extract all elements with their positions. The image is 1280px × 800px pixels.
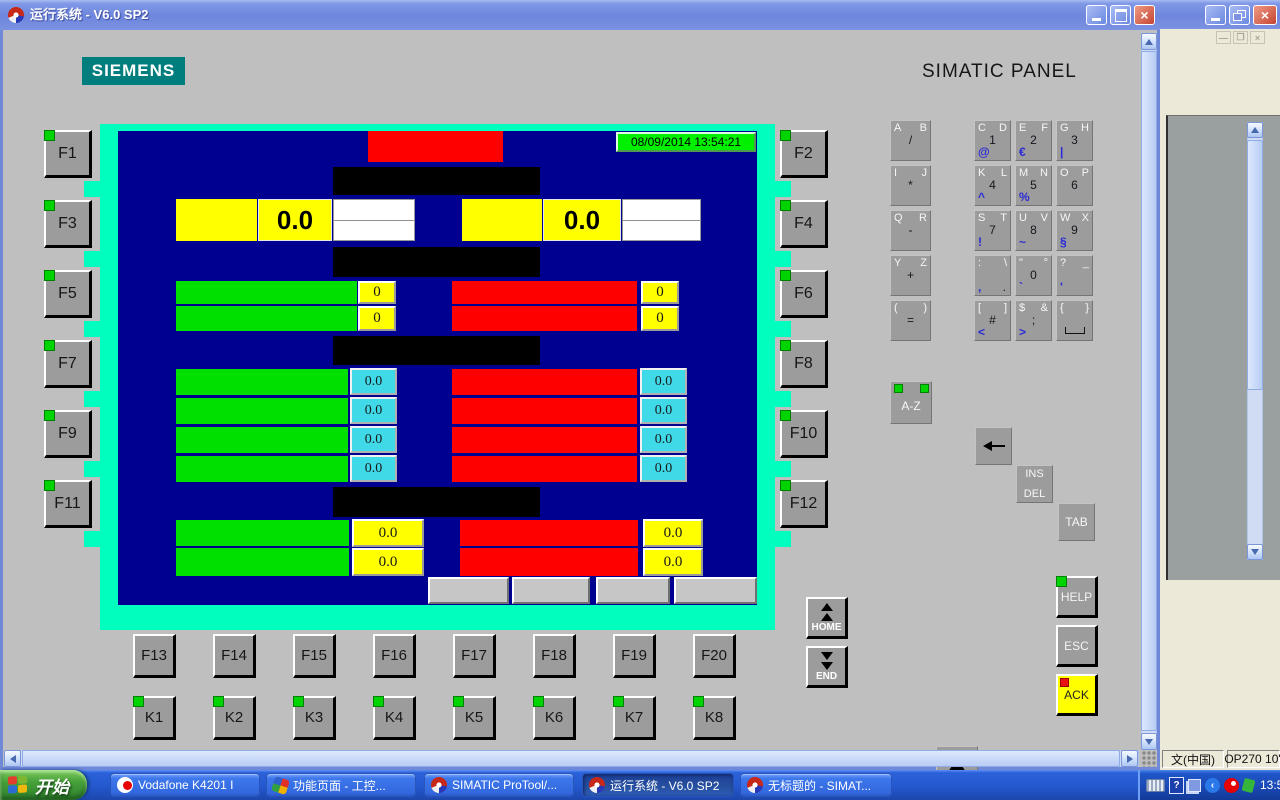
- key-label: HELP: [1061, 590, 1092, 604]
- flow-box: 0.0: [640, 426, 687, 453]
- key-label: END: [816, 671, 837, 682]
- kkey-k5[interactable]: K5: [453, 696, 496, 740]
- green-bar: [176, 281, 357, 304]
- bezel-tab: [84, 531, 100, 547]
- key-label: K8: [705, 709, 723, 726]
- fkey-f4[interactable]: F4: [780, 200, 828, 248]
- key-label: F10: [790, 425, 818, 443]
- fkey-f19[interactable]: F19: [613, 634, 656, 678]
- protool-icon: [431, 777, 447, 793]
- total-box: 0.0: [352, 519, 424, 547]
- led-indicator: [44, 270, 55, 281]
- close-icon: ×: [1261, 8, 1269, 22]
- keypad-key[interactable]: CD1@: [974, 120, 1011, 161]
- scrollbar-thumb[interactable]: [22, 750, 1120, 767]
- red-bar: [452, 456, 637, 482]
- key-label: §: [1060, 235, 1067, 249]
- key-label: }: [1085, 302, 1089, 314]
- runtime-window: 运行系统 - V6.0 SP2 × SIEMENS SIMATIC PANEL …: [0, 0, 1160, 770]
- display-tray-icon[interactable]: [1188, 779, 1201, 792]
- key-label: F17: [461, 647, 487, 664]
- bezel-tab: [84, 181, 100, 197]
- flow-box: 0.0: [350, 397, 397, 424]
- datetime-display: 08/09/2014 13:54:21: [616, 132, 756, 152]
- home-key[interactable]: HOME: [806, 597, 848, 639]
- keypad-key[interactable]: UV8~: [1015, 210, 1052, 251]
- fkey-f1[interactable]: F1: [44, 130, 92, 178]
- red-bar: [452, 306, 637, 331]
- flow-box: 0.0: [640, 368, 687, 395]
- analog-value-right: 0.0: [543, 199, 621, 241]
- bezel-tab: [775, 181, 791, 197]
- vodafone-icon: [117, 777, 133, 793]
- close-icon: ×: [1140, 8, 1148, 22]
- protool-icon: [747, 777, 763, 793]
- key-label: F15: [301, 647, 327, 664]
- setpoint-field-right[interactable]: [622, 199, 701, 241]
- panel-bezel-left: [100, 124, 118, 630]
- keypad-key[interactable]: {}: [1056, 300, 1093, 341]
- az-key[interactable]: A-Z: [890, 381, 932, 424]
- keyboard-tray-icon[interactable]: [1146, 779, 1165, 792]
- system-tray: ? ‹ 13:54: [1138, 770, 1280, 800]
- keypad: CD1@EF2€GH3|KL4^MN5%OP6ST7!UV8~WX9§:\,."…: [974, 120, 1093, 341]
- fkey-f18[interactable]: F18: [533, 634, 576, 678]
- ins-del-key[interactable]: INS DEL: [1016, 465, 1053, 503]
- key-label: HOME: [812, 622, 842, 633]
- key-label: F12: [790, 495, 818, 513]
- minimize-button[interactable]: [1086, 5, 1107, 25]
- soft-button[interactable]: [596, 577, 670, 604]
- key-label: DEL: [1017, 488, 1052, 500]
- resize-grip[interactable]: [1141, 750, 1157, 767]
- bezel-tab: [775, 391, 791, 407]
- signal-tray-icon[interactable]: [1242, 777, 1256, 792]
- key-label: <: [978, 325, 985, 339]
- key-label: @: [978, 145, 990, 159]
- key-label: F14: [221, 647, 247, 664]
- panel-bezel-bottom: [100, 605, 775, 630]
- key-label: +: [891, 268, 930, 282]
- fkey-f2[interactable]: F2: [780, 130, 828, 178]
- keypad-key[interactable]: IJ*: [890, 165, 931, 206]
- task-label: 功能页面 - 工控...: [293, 777, 386, 794]
- siemens-logo: SIEMENS: [82, 57, 185, 85]
- led-indicator: [44, 410, 55, 421]
- keypad-key[interactable]: QR-: [890, 210, 931, 251]
- scroll-right-button[interactable]: [1121, 750, 1138, 767]
- help-key[interactable]: HELP: [1056, 576, 1098, 618]
- led-indicator: [44, 340, 55, 351]
- red-bar: [452, 281, 637, 304]
- led-indicator: [133, 696, 144, 707]
- key-label: ESC: [1064, 639, 1089, 653]
- scroll-down-icon: [1145, 739, 1153, 745]
- red-bar: [452, 427, 637, 453]
- ack-key[interactable]: ACK: [1056, 674, 1098, 716]
- close-button[interactable]: ×: [1253, 5, 1277, 25]
- led-indicator: [613, 696, 624, 707]
- keypad-key[interactable]: ST7!: [974, 210, 1011, 251]
- bezel-tab: [84, 321, 100, 337]
- bezel-tab: [84, 251, 100, 267]
- taskbar-task[interactable]: 无标题的 - SIMAT...: [740, 773, 892, 797]
- protool-window: × — ❐ × 文(中国) OP270 10": [1160, 0, 1280, 770]
- key-label: !: [978, 235, 982, 249]
- count-box: 0: [358, 306, 396, 331]
- backspace-key[interactable]: [975, 427, 1012, 465]
- key-label: ^: [978, 190, 985, 204]
- key-label: F1: [58, 145, 77, 163]
- key-label: %: [1019, 190, 1030, 204]
- scroll-up-icon: [1251, 127, 1259, 133]
- led-indicator: [453, 696, 464, 707]
- yellow-field: [462, 199, 542, 241]
- panel-bezel-top: [100, 124, 775, 131]
- keypad-key[interactable]: :\,.: [974, 255, 1011, 296]
- key-label: \: [1004, 257, 1007, 269]
- key-label: F2: [794, 145, 813, 163]
- led-indicator: [1056, 576, 1067, 587]
- led-indicator: [44, 480, 55, 491]
- fkey-f16[interactable]: F16: [373, 634, 416, 678]
- key-label: K4: [385, 709, 403, 726]
- flow-box: 0.0: [350, 368, 397, 395]
- key-label: TAB: [1065, 515, 1087, 529]
- mimic-black-bar: [333, 247, 540, 277]
- fkey-f15[interactable]: F15: [293, 634, 336, 678]
- green-bar: [176, 427, 348, 453]
- green-bar: [176, 369, 348, 395]
- key-label: F4: [794, 215, 813, 233]
- key-label: F8: [794, 355, 813, 373]
- statusbar-language-field: 文(中国): [1162, 750, 1224, 768]
- taskbar: 开始 Vodafone K4201 I 功能页面 - 工控... SIMATIC…: [0, 770, 1280, 800]
- protool-icon: [589, 777, 605, 793]
- key-label: INS: [1017, 468, 1052, 480]
- bezel-tab: [84, 391, 100, 407]
- window-titlebar[interactable]: 运行系统 - V6.0 SP2 ×: [0, 0, 1160, 30]
- fkey-f3[interactable]: F3: [44, 200, 92, 248]
- key-label: .: [1003, 280, 1006, 294]
- analog-value-left: 0.0: [258, 199, 332, 241]
- fkey-f12[interactable]: F12: [780, 480, 828, 528]
- scroll-up-button[interactable]: [1141, 33, 1157, 50]
- keypad-key[interactable]: EF2€: [1015, 120, 1052, 161]
- scroll-down-icon: [1251, 549, 1259, 555]
- clock: 13:54: [1260, 778, 1280, 792]
- led-indicator: [44, 130, 55, 141]
- taskbar-task[interactable]: Vodafone K4201 I: [110, 773, 260, 797]
- close-button[interactable]: ×: [1134, 5, 1155, 25]
- key-label: 6: [1057, 178, 1092, 192]
- windows-logo-icon: [8, 775, 28, 795]
- key-label: ,: [978, 280, 981, 294]
- scroll-down-button[interactable]: [1247, 544, 1263, 560]
- flow-box: 0.0: [350, 426, 397, 453]
- tab-key[interactable]: TAB: [1058, 503, 1095, 541]
- taskbar-task[interactable]: 功能页面 - 工控...: [266, 773, 416, 797]
- led-indicator: [780, 200, 791, 211]
- key-label: ACK: [1064, 688, 1089, 702]
- fkey-f6[interactable]: F6: [780, 270, 828, 318]
- scroll-down-button[interactable]: [1141, 733, 1157, 750]
- count-box: 0: [358, 281, 396, 304]
- fkey-f17[interactable]: F17: [453, 634, 496, 678]
- key-label: ?: [1060, 257, 1066, 269]
- led-indicator: [44, 200, 55, 211]
- bezel-tab: [775, 461, 791, 477]
- backspace-icon: [983, 441, 1005, 451]
- key-label: =: [891, 313, 930, 327]
- keypad-key[interactable]: MN5%: [1015, 165, 1052, 206]
- key-label: K5: [465, 709, 483, 726]
- kkey-k8[interactable]: K8: [693, 696, 736, 740]
- key-label: {: [1060, 302, 1064, 314]
- bezel-tab: [775, 321, 791, 337]
- led-indicator: [533, 696, 544, 707]
- flow-box: 0.0: [640, 397, 687, 424]
- key-label: F11: [54, 495, 80, 513]
- scroll-up-button[interactable]: [1247, 122, 1263, 138]
- led-indicator: [780, 410, 791, 421]
- key-label: K7: [625, 709, 643, 726]
- kkey-k3[interactable]: K3: [293, 696, 336, 740]
- maximize-icon: [1115, 9, 1127, 22]
- start-button[interactable]: 开始: [0, 770, 87, 800]
- green-bar: [176, 398, 348, 424]
- scrollbar-thumb[interactable]: [1141, 51, 1157, 731]
- keypad-key[interactable]: WX9§: [1056, 210, 1093, 251]
- key-label: K2: [225, 709, 243, 726]
- key-label: ~: [1019, 235, 1026, 249]
- mimic-black-bar: [333, 487, 540, 517]
- keypad-key[interactable]: AB/: [890, 120, 931, 161]
- led-indicator: [213, 696, 224, 707]
- total-box: 0.0: [643, 519, 703, 547]
- scroll-up-icon: [1145, 39, 1153, 45]
- mimic-black-bar: [333, 167, 540, 195]
- led-indicator: [373, 696, 384, 707]
- minimize-icon: [1211, 18, 1220, 21]
- key-label: ': [1060, 280, 1063, 294]
- fkey-f11[interactable]: F11: [44, 480, 92, 528]
- led-indicator: [293, 696, 304, 707]
- app-burst-icon: [271, 776, 290, 795]
- led-indicator: [780, 270, 791, 281]
- key-label: K3: [305, 709, 323, 726]
- task-label: Vodafone K4201 I: [138, 778, 233, 792]
- bezel-tab: [775, 531, 791, 547]
- scroll-left-icon: [10, 755, 16, 763]
- start-label: 开始: [35, 773, 69, 798]
- led-indicator: [920, 384, 929, 393]
- key-label: >: [1019, 325, 1026, 339]
- desktop: × — ❐ × 文(中国) OP270 10" 运行系统 - V6.0 SP2 …: [0, 0, 1280, 800]
- fkey-f20[interactable]: F20: [693, 634, 736, 678]
- soft-button[interactable]: [428, 577, 509, 604]
- kkey-k2[interactable]: K2: [213, 696, 256, 740]
- key-label: F16: [381, 647, 407, 664]
- green-bar: [176, 456, 348, 482]
- green-bar: [176, 520, 349, 546]
- key-label: F7: [58, 355, 77, 373]
- count-box: 0: [641, 281, 679, 304]
- fkey-f10[interactable]: F10: [780, 410, 828, 458]
- esc-key[interactable]: ESC: [1056, 625, 1098, 667]
- window-title: 运行系统 - V6.0 SP2: [30, 0, 148, 30]
- key-label: A-Z: [891, 399, 931, 413]
- key-label: *: [891, 178, 930, 192]
- flow-box: 0.0: [350, 455, 397, 482]
- key-label: :: [978, 257, 981, 269]
- bezel-tab: [775, 251, 791, 267]
- fkey-f7[interactable]: F7: [44, 340, 92, 388]
- vodafone-tray-icon[interactable]: [1224, 778, 1239, 793]
- soft-button[interactable]: [674, 577, 757, 604]
- key-label: F6: [794, 285, 813, 303]
- key-label: _: [1083, 257, 1089, 269]
- key-label: /: [891, 133, 930, 147]
- red-bar: [452, 398, 637, 424]
- led-indicator: [693, 696, 704, 707]
- minimize-icon: [1092, 18, 1101, 21]
- key-label: `: [1019, 280, 1023, 294]
- led-indicator: [894, 384, 903, 393]
- mdi-minimize-button[interactable]: —: [1216, 31, 1231, 44]
- key-label: |: [1060, 145, 1063, 159]
- led-indicator: [780, 480, 791, 491]
- flow-box: 0.0: [640, 455, 687, 482]
- window-border-left[interactable]: [0, 30, 3, 770]
- panel-bezel-right: [757, 124, 775, 630]
- keypad-key[interactable]: ?_': [1056, 255, 1093, 296]
- led-indicator: [780, 130, 791, 141]
- keypad-key[interactable]: "°0`: [1015, 255, 1052, 296]
- keypad-key[interactable]: OP6: [1056, 165, 1093, 206]
- kkey-k7[interactable]: K7: [613, 696, 656, 740]
- kkey-k1[interactable]: K1: [133, 696, 176, 740]
- keypad-key[interactable]: YZ+: [890, 255, 931, 296]
- mdi-restore-button[interactable]: ❐: [1233, 31, 1248, 44]
- double-up-icon: [821, 602, 833, 622]
- simatic-panel-label: SIMATIC PANEL: [922, 61, 1077, 83]
- key-label: F19: [621, 647, 647, 664]
- statusbar-device-field: OP270 10": [1227, 750, 1280, 768]
- mimic-red-bar: [368, 131, 503, 162]
- total-box: 0.0: [643, 548, 703, 576]
- led-indicator: [780, 340, 791, 351]
- led-indicator: [1060, 678, 1069, 687]
- key-label: F13: [141, 647, 167, 664]
- app-icon: [8, 7, 24, 23]
- taskbar-task-active[interactable]: 运行系统 - V6.0 SP2: [582, 773, 734, 797]
- key-label: F18: [541, 647, 567, 664]
- task-label: SIMATIC ProTool/...: [452, 778, 557, 792]
- fkey-f13[interactable]: F13: [133, 634, 176, 678]
- maximize-button[interactable]: [1110, 5, 1131, 25]
- key-label: F9: [58, 425, 77, 443]
- red-bar: [460, 548, 638, 576]
- red-bar: [452, 369, 637, 395]
- scrollbar-thumb[interactable]: [1247, 140, 1263, 390]
- count-box: 0: [641, 306, 679, 331]
- restore-icon: [1233, 10, 1246, 21]
- soft-button[interactable]: [512, 577, 590, 604]
- keypad-key[interactable]: []#<: [974, 300, 1011, 341]
- green-bar: [176, 306, 357, 331]
- fkey-f8[interactable]: F8: [780, 340, 828, 388]
- keypad-left-column: AB/IJ*QR-YZ+()=: [890, 120, 931, 341]
- scroll-left-button[interactable]: [4, 750, 21, 767]
- window-border-right[interactable]: [1157, 30, 1160, 770]
- taskbar-task[interactable]: SIMATIC ProTool/...: [424, 773, 574, 797]
- help-tray-icon[interactable]: ?: [1169, 777, 1184, 794]
- key-label: F20: [701, 647, 727, 664]
- keypad-key[interactable]: GH3|: [1056, 120, 1093, 161]
- mdi-close-button[interactable]: ×: [1250, 31, 1265, 44]
- key-label: F3: [58, 215, 77, 233]
- space-icon: [1065, 327, 1085, 334]
- key-label: €: [1019, 145, 1026, 159]
- task-label: 运行系统 - V6.0 SP2: [610, 777, 719, 794]
- end-key[interactable]: END: [806, 646, 848, 688]
- keypad-key[interactable]: ()=: [890, 300, 931, 341]
- fkey-f14[interactable]: F14: [213, 634, 256, 678]
- connect-tray-icon[interactable]: ‹: [1205, 778, 1220, 793]
- fkey-f9[interactable]: F9: [44, 410, 92, 458]
- double-down-icon: [821, 651, 833, 671]
- fkey-f5[interactable]: F5: [44, 270, 92, 318]
- task-label: 无标题的 - SIMAT...: [768, 777, 871, 794]
- yellow-field: [176, 199, 257, 241]
- green-bar: [176, 548, 349, 576]
- minimize-button[interactable]: [1205, 5, 1226, 25]
- mimic-black-bar: [333, 336, 540, 365]
- kkey-k4[interactable]: K4: [373, 696, 416, 740]
- kkey-k6[interactable]: K6: [533, 696, 576, 740]
- setpoint-field-left[interactable]: [333, 199, 415, 241]
- keypad-key[interactable]: KL4^: [974, 165, 1011, 206]
- total-box: 0.0: [352, 548, 424, 576]
- scroll-right-icon: [1127, 755, 1133, 763]
- key-label: K6: [545, 709, 563, 726]
- bezel-tab: [84, 461, 100, 477]
- keypad-key[interactable]: $&;>: [1015, 300, 1052, 341]
- key-label: F5: [58, 285, 77, 303]
- key-label: K1: [145, 709, 163, 726]
- key-label: -: [891, 223, 930, 237]
- red-bar: [460, 520, 638, 546]
- restore-button[interactable]: [1229, 5, 1250, 25]
